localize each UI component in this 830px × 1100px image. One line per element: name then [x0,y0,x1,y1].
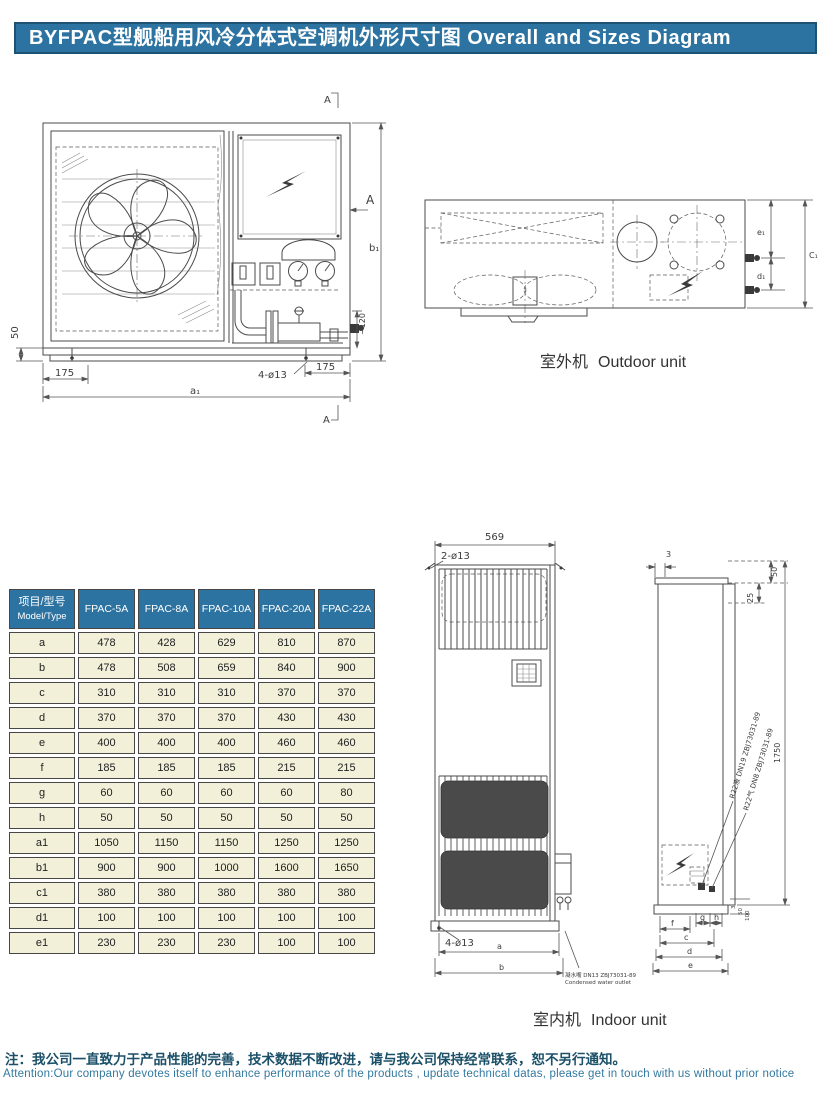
table-row: f185185185215215 [9,757,375,779]
outdoor-front-drawing: 50 175 4-ø13 175 a₁ b₁ ~120 A A A [10,83,415,428]
cell: 430 [258,707,315,729]
cell: 400 [198,732,255,754]
control-panel [512,660,541,686]
dim-25: 25 [746,593,755,603]
dim-b: b [499,963,504,972]
indoor-front-drawing: 569 2-ø13 [413,518,648,1008]
outlet-label-cn: 凝水嘴 DN13 ZBJ73031-89 [565,971,636,979]
cell: 1250 [258,832,315,854]
table-row: e400400400460460 [9,732,375,754]
cell: 80 [318,782,375,804]
lightning-icon [266,171,306,197]
dim-1750: 1750 [773,743,782,763]
table-row: d370370370430430 [9,707,375,729]
compressor [232,290,364,343]
row-label: b [9,657,75,679]
dim-d1: d₁ [757,272,765,281]
dim-g: g [700,913,705,922]
page-title-banner: BYFPAC型舰船用风冷分体式空调机外形尺寸图 Overall and Size… [14,22,817,54]
row-label: a [9,632,75,654]
row-label: a1 [9,832,75,854]
lower-grille [439,776,548,916]
cell: 100 [318,932,375,954]
section-mark-top: A [324,95,331,106]
cell: 310 [78,682,135,704]
cell: 185 [198,757,255,779]
gauge-panel [230,240,340,290]
cell: 310 [138,682,195,704]
cell: 380 [318,882,375,904]
cell: 460 [258,732,315,754]
cell: 50 [318,807,375,829]
cell: 400 [138,732,195,754]
indoor-side-drawing: 3 50 25 1750 R22液 DN19 ZBJ73031-89 R22气 … [638,515,830,1005]
cell: 60 [78,782,135,804]
table-row: c310310310370370 [9,682,375,704]
table-row: c1380380380380380 [9,882,375,904]
dim-50-top: 50 [770,567,779,577]
row-label: c [9,682,75,704]
outdoor-caption-en: Outdoor unit [598,354,686,371]
cell: 1250 [318,832,375,854]
cell: 1150 [198,832,255,854]
dimensions: 3 50 25 1750 R22液 DN19 ZBJ73031-89 R22气 … [646,550,790,975]
side-box [555,854,571,910]
cell: 60 [138,782,195,804]
table-header-row: 项目/型号Model/Type FPAC-5A FPAC-8A FPAC-10A… [9,589,375,629]
cell: 1150 [138,832,195,854]
cell: 380 [198,882,255,904]
outdoor-top-body [425,200,760,323]
dim-e1: e₁ [757,228,765,237]
table-row: a478428629810870 [9,632,375,654]
row-label: d1 [9,907,75,929]
dim-c: c [684,933,688,942]
dim-c1: C₁ [809,251,818,260]
dim-a: a [497,942,502,951]
cell: 230 [78,932,135,954]
cell: 900 [318,657,375,679]
cell: 370 [138,707,195,729]
row-label: g [9,782,75,804]
cell: 428 [138,632,195,654]
dimensions-bottom: 4-ø13 a b 凝水嘴 DN13 ZBJ73031-89 Condensed… [435,926,636,986]
dim-4-holes: 4-ø13 [445,938,474,949]
dim-d: d [687,947,692,956]
table-row: a110501150115012501250 [9,832,375,854]
col-header: FPAC-8A [138,589,195,629]
cell: 870 [318,632,375,654]
cell: 1050 [78,832,135,854]
outdoor-front-cabinet [43,123,350,348]
cell: 900 [138,857,195,879]
row-label: c1 [9,882,75,904]
cell: 230 [138,932,195,954]
cell: 50 [198,807,255,829]
cell: 430 [318,707,375,729]
cell: 370 [78,707,135,729]
row-label: f [9,757,75,779]
cell: 629 [198,632,255,654]
cell: 840 [258,657,315,679]
cell: 185 [78,757,135,779]
cell: 370 [318,682,375,704]
dim-base-3: 3 [731,905,737,909]
table-row: e1230230230100100 [9,932,375,954]
section-mark-bottom: A [323,415,330,426]
indoor-caption-en: Indoor unit [591,1012,667,1029]
note-chinese: 注：我公司一直致力于产品性能的完善，技术数据不断改进，请与我公司保持经常联系，恕… [5,1048,626,1068]
dim-569: 569 [485,532,504,543]
cell: 215 [258,757,315,779]
page-title: BYFPAC型舰船用风冷分体式空调机外形尺寸图 Overall and Size… [29,27,731,49]
cell: 370 [258,682,315,704]
row-label: e1 [9,932,75,954]
col-header: FPAC-5A [78,589,135,629]
table-row: b1900900100016001650 [9,857,375,879]
section-mark-right: A [366,193,375,207]
cell: 380 [78,882,135,904]
dim-h: h [714,913,719,922]
cell: 50 [78,807,135,829]
spec-table: 项目/型号Model/Type FPAC-5A FPAC-8A FPAC-10A… [6,586,378,957]
dim-holes: 4-ø13 [258,370,287,381]
cell: 400 [78,732,135,754]
base-frame [43,348,350,361]
cell: 460 [318,732,375,754]
cell: 230 [198,932,255,954]
cell: 100 [258,932,315,954]
cell: 215 [318,757,375,779]
indoor-caption-cn: 室内机 [533,1012,581,1029]
electrical-box [238,135,341,239]
top-grille [439,569,547,649]
cell: 185 [138,757,195,779]
table-row: g6060606080 [9,782,375,804]
cell: 100 [138,907,195,929]
cell: 900 [78,857,135,879]
row-label: h [9,807,75,829]
outdoor-top-drawing: e₁ d₁ C₁ [413,185,825,350]
cell: 370 [198,707,255,729]
cell: 50 [258,807,315,829]
cell: 100 [198,907,255,929]
table-row: d1100100100100100 [9,907,375,929]
dim-f: f [671,919,674,928]
dim-120: ~120 [358,313,367,335]
base-frame [431,921,559,931]
col-header: FPAC-10A [198,589,255,629]
cell: 659 [198,657,255,679]
dim-3: 3 [666,550,671,559]
cell: 100 [78,907,135,929]
cell: 478 [78,657,135,679]
indoor-caption: 室内机Indoor unit [533,1006,667,1030]
dim-base-100: 100 [745,910,751,921]
fan-icon [69,169,205,304]
col-header-model: 项目/型号Model/Type [9,589,75,629]
cell: 310 [198,682,255,704]
dim-175-right: 175 [316,362,335,373]
col-header: FPAC-20A [258,589,315,629]
outlet-label-en: Condensed water outlet [565,980,632,986]
outdoor-caption: 室外机Outdoor unit [540,348,686,372]
cell: 100 [258,907,315,929]
cell: 1650 [318,857,375,879]
dim-2-holes: 2-ø13 [441,551,470,562]
dim-b1: b₁ [369,243,379,254]
dim-base-50: 50 [738,908,744,915]
cell: 100 [318,907,375,929]
row-label: e [9,732,75,754]
cell: 810 [258,632,315,654]
cell: 1000 [198,857,255,879]
dimensions-top: 569 2-ø13 [431,532,555,568]
outdoor-caption-cn: 室外机 [540,354,588,371]
note-english: Attention:Our company devotes itself to … [3,1068,794,1080]
dim-a1: a₁ [190,386,200,397]
dim-175-left: 175 [55,368,74,379]
table-row: b478508659840900 [9,657,375,679]
cell: 478 [78,632,135,654]
row-label: d [9,707,75,729]
cell: 380 [138,882,195,904]
table-row: h5050505050 [9,807,375,829]
col-header: FPAC-22A [318,589,375,629]
cell: 508 [138,657,195,679]
row-label: b1 [9,857,75,879]
dim-50: 50 [10,326,21,339]
cell: 1600 [258,857,315,879]
cell: 60 [258,782,315,804]
cell: 60 [198,782,255,804]
cell: 50 [138,807,195,829]
cell: 380 [258,882,315,904]
dim-e: e [688,961,693,970]
